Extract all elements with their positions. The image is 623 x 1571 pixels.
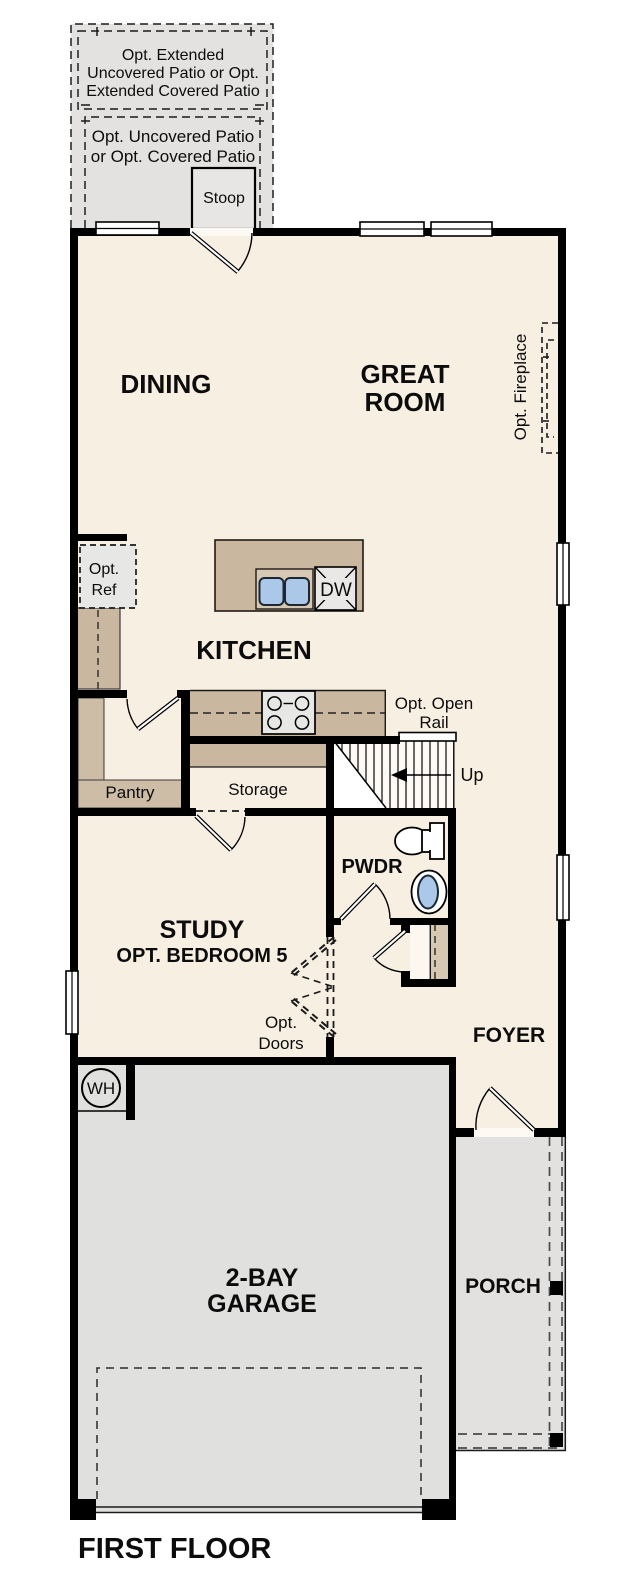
svg-text:OPT. BEDROOM 5: OPT. BEDROOM 5 [116,945,287,967]
svg-text:GREAT: GREAT [360,359,449,389]
svg-text:Opt. Extended: Opt. Extended [122,47,224,64]
svg-text:STUDY: STUDY [160,916,245,944]
svg-text:PORCH: PORCH [465,1275,541,1298]
svg-text:Opt.: Opt. [265,1013,297,1032]
svg-text:Up: Up [460,765,483,785]
svg-text:Opt.: Opt. [89,561,119,578]
svg-text:Opt. Open: Opt. Open [395,694,473,713]
svg-text:DINING: DINING [121,369,212,399]
svg-text:Ref: Ref [92,582,117,599]
svg-text:Extended Covered Patio: Extended Covered Patio [86,83,260,100]
svg-text:GARAGE: GARAGE [207,1290,317,1318]
svg-text:Uncovered Patio or Opt.: Uncovered Patio or Opt. [87,65,259,82]
svg-text:FIRST FLOOR: FIRST FLOOR [78,1533,271,1565]
svg-text:FOYER: FOYER [473,1024,545,1047]
svg-text:PWDR: PWDR [341,856,403,878]
svg-text:DW: DW [320,580,352,601]
svg-text:Doors: Doors [258,1034,303,1053]
svg-text:2-BAY: 2-BAY [226,1264,299,1292]
svg-text:KITCHEN: KITCHEN [196,635,312,665]
svg-text:Opt. Fireplace: Opt. Fireplace [511,334,530,441]
svg-text:ROOM: ROOM [365,387,446,417]
svg-text:Storage: Storage [228,780,288,799]
svg-text:or Opt. Covered Patio: or Opt. Covered Patio [91,147,255,166]
svg-text:Rail: Rail [419,713,448,732]
svg-text:Opt. Uncovered Patio: Opt. Uncovered Patio [92,127,255,146]
svg-text:Pantry: Pantry [105,783,155,802]
svg-text:Stoop: Stoop [203,190,245,207]
svg-text:WH: WH [87,1079,115,1098]
